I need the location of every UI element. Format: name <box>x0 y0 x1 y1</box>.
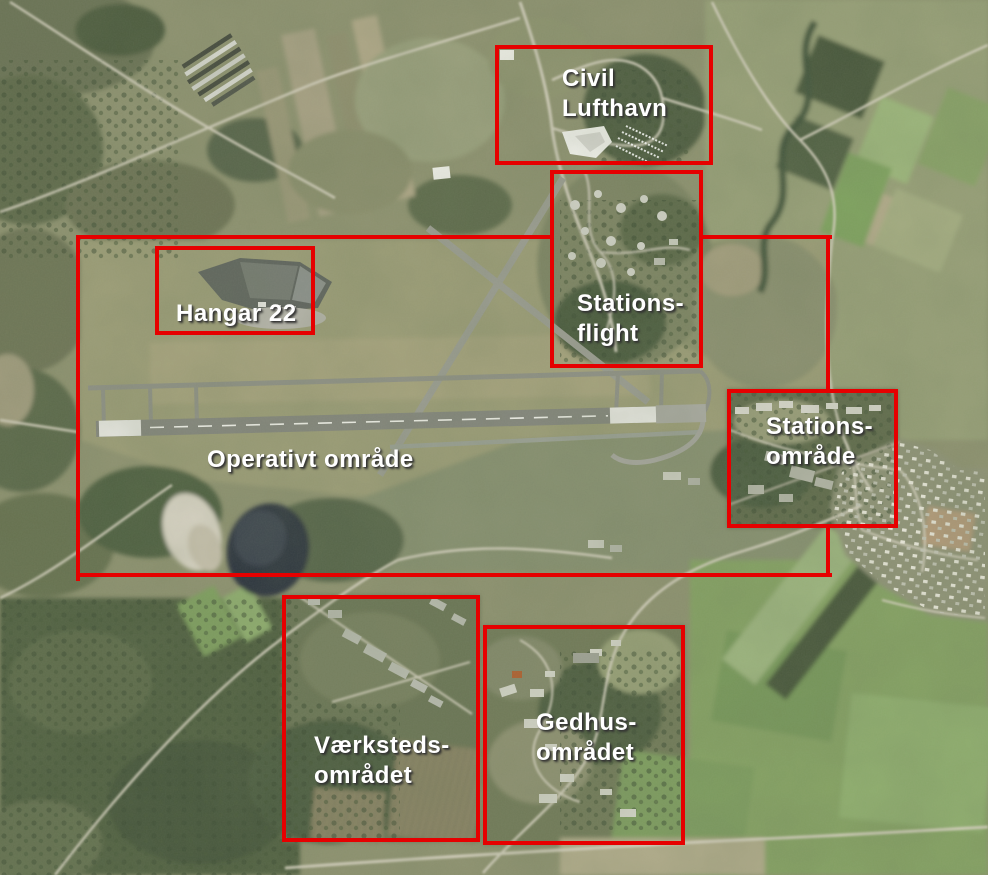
operativt-omraade-border-segment <box>76 235 80 581</box>
operativt-omraade-border-segment <box>76 573 832 577</box>
civil-lufthavn-label: CivilLufthavn <box>562 64 667 124</box>
annotated-aerial-map: CivilLufthavnStations-flightHangar 22Ope… <box>0 0 988 875</box>
region-overlays: CivilLufthavnStations-flightHangar 22Ope… <box>0 0 988 875</box>
vaerksteds-omraadet-label: Værksteds-området <box>314 731 450 791</box>
operativt-omraade-border-segment <box>76 235 550 239</box>
operativt-omraade-border-segment <box>826 235 830 389</box>
stationsflight-label: Stations-flight <box>577 289 684 349</box>
gedhus-omraadet-label: Gedhus-området <box>536 708 637 768</box>
stations-omraade-label: Stations-område <box>766 412 873 472</box>
operativt-omraade-border-segment <box>703 235 832 239</box>
vaerksteds-omraadet-box <box>282 595 480 842</box>
operativt-omraade-label: Operativt område <box>207 445 414 475</box>
hangar-22-label: Hangar 22 <box>176 299 297 329</box>
operativt-omraade-border-segment <box>826 528 830 577</box>
